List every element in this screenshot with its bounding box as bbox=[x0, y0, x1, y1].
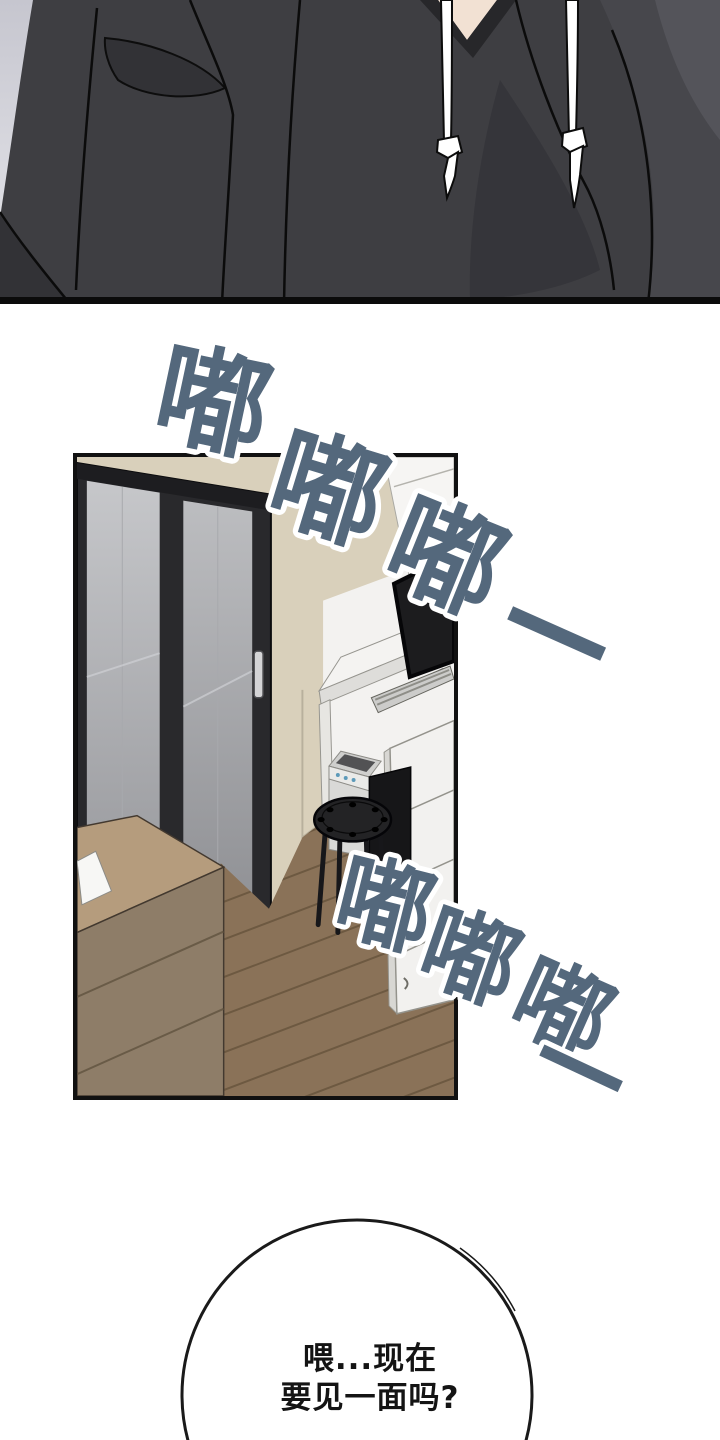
room-scene bbox=[77, 457, 454, 1096]
sfx-bottom-char-3: 嘟 bbox=[495, 939, 630, 1082]
sfx-bottom-dash-outline: — bbox=[516, 990, 652, 1133]
figure-panel bbox=[0, 0, 720, 304]
sfx-top-dash: — bbox=[481, 542, 639, 710]
room-panel bbox=[73, 453, 458, 1100]
dresser bbox=[77, 816, 224, 1096]
door-handle bbox=[254, 651, 263, 698]
comic-page: 喂...现在 要见一面吗? 嘟 嘟 嘟 — — 嘟 嘟 嘟 — — bbox=[0, 0, 720, 1440]
door-panel-left bbox=[87, 481, 160, 869]
bubble-line-2: 要见一面吗? bbox=[200, 1380, 540, 1416]
sfx-top-dash-outline: — bbox=[481, 542, 639, 710]
sfx-bottom-dash: — bbox=[516, 990, 652, 1133]
bubble-line-1: 喂...现在 bbox=[200, 1341, 540, 1377]
figure-panel-bottom-border bbox=[0, 297, 720, 304]
